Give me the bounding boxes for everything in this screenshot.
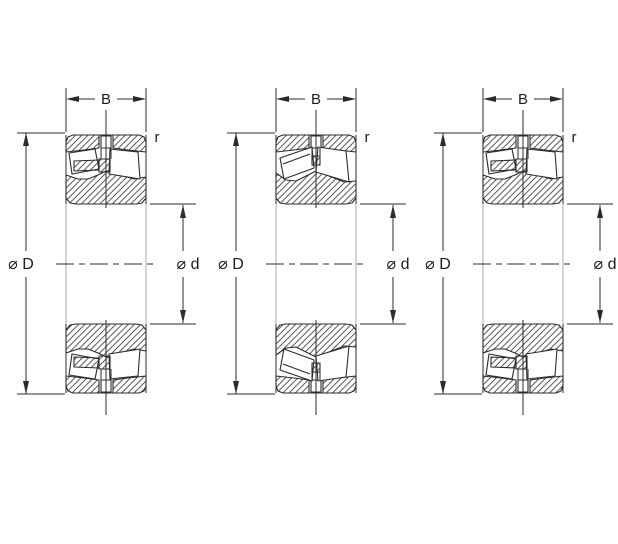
center-guide-block xyxy=(516,159,527,172)
roller-right xyxy=(526,349,557,379)
corner-radius-label: r xyxy=(155,129,160,146)
b-arrow-right xyxy=(343,96,356,102)
od-arrow-top xyxy=(440,133,446,146)
bore-dia-label: ⌀ d xyxy=(177,256,200,273)
od-arrow-bottom xyxy=(23,381,29,394)
bore-arrow-top xyxy=(597,205,603,218)
drawing-canvas: Br⌀ D⌀ dBr⌀ D⌀ dBr⌀ D⌀ d xyxy=(0,0,618,544)
b-arrow-left xyxy=(483,96,496,102)
guide-pin xyxy=(491,160,516,171)
bore-arrow-bottom xyxy=(597,310,603,323)
bearing-3: Br⌀ D⌀ d xyxy=(425,88,616,415)
outer-dia-label: ⌀ D xyxy=(425,256,451,273)
od-arrow-top xyxy=(23,133,29,146)
bearing-1: Br⌀ D⌀ d xyxy=(8,88,199,415)
roller-right xyxy=(526,149,557,179)
bearing-views: Br⌀ D⌀ dBr⌀ D⌀ dBr⌀ D⌀ d xyxy=(8,88,616,415)
od-arrow-bottom xyxy=(440,381,446,394)
width-dim-label: B xyxy=(311,91,321,108)
center-guide-block xyxy=(99,356,110,369)
bore-dia-label: ⌀ d xyxy=(387,256,410,273)
center-guide-block xyxy=(99,159,110,172)
roller-right xyxy=(109,149,140,179)
corner-radius-label: r xyxy=(572,129,577,146)
b-arrow-right xyxy=(550,96,563,102)
width-dim-label: B xyxy=(101,91,111,108)
guide-pin xyxy=(74,160,99,171)
bearing-2: Br⌀ D⌀ d xyxy=(218,88,409,415)
od-arrow-bottom xyxy=(233,381,239,394)
roller-right xyxy=(109,349,140,379)
b-arrow-left xyxy=(276,96,289,102)
outer-dia-label: ⌀ D xyxy=(8,256,34,273)
outer-dia-label: ⌀ D xyxy=(218,256,244,273)
bore-arrow-bottom xyxy=(180,310,186,323)
bore-arrow-top xyxy=(390,205,396,218)
b-arrow-left xyxy=(66,96,79,102)
bore-dia-label: ⌀ d xyxy=(594,256,617,273)
od-arrow-top xyxy=(233,133,239,146)
corner-radius-label: r xyxy=(365,129,370,146)
b-arrow-right xyxy=(133,96,146,102)
guide-pin xyxy=(491,357,516,368)
center-guide-block xyxy=(516,356,527,369)
bearing-technical-drawing: Br⌀ D⌀ dBr⌀ D⌀ dBr⌀ D⌀ d xyxy=(0,0,618,544)
bore-arrow-bottom xyxy=(390,310,396,323)
bore-arrow-top xyxy=(180,205,186,218)
guide-pin xyxy=(74,357,99,368)
width-dim-label: B xyxy=(518,91,528,108)
